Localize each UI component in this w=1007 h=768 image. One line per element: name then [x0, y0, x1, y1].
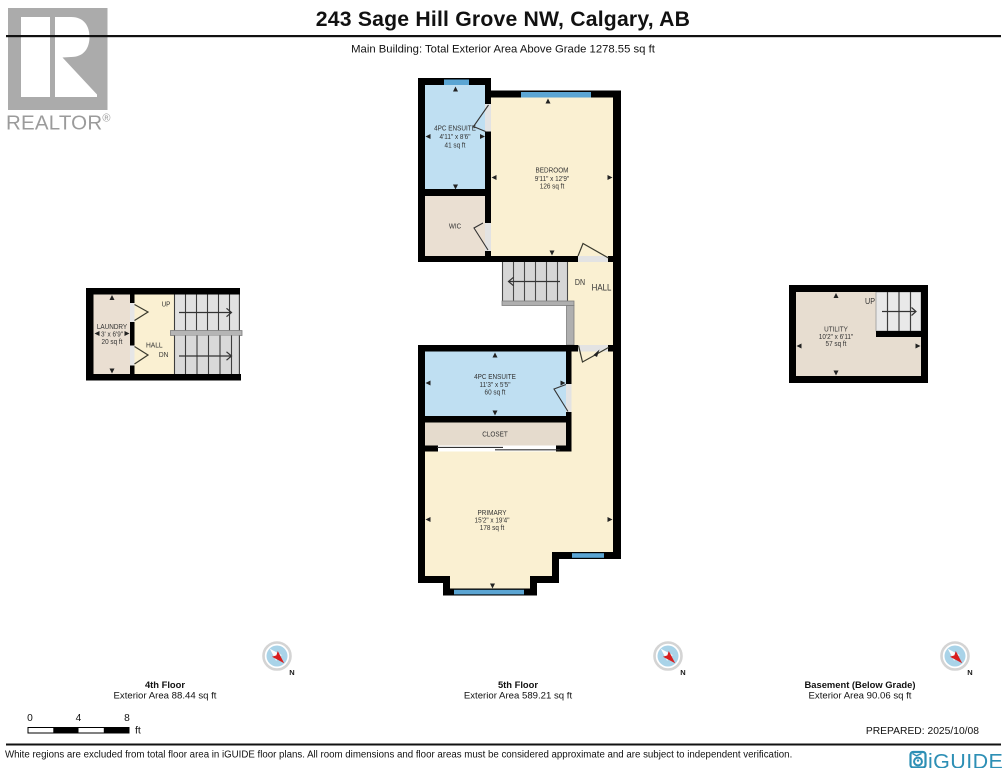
svg-text:UTILITY: UTILITY [824, 326, 848, 334]
svg-text:60 sq ft: 60 sq ft [485, 389, 506, 397]
svg-text:Basement (Below Grade): Basement (Below Grade) [805, 679, 916, 690]
svg-text:5th Floor: 5th Floor [498, 679, 538, 690]
svg-text:White regions are excluded fro: White regions are excluded from total fl… [5, 750, 792, 761]
svg-text:0: 0 [27, 713, 33, 724]
svg-text:243 Sage Hill Grove NW, Calgar: 243 Sage Hill Grove NW, Calgary, AB [316, 8, 690, 31]
svg-text:41 sq ft: 41 sq ft [445, 142, 466, 150]
svg-text:Main Building: Total Exterior: Main Building: Total Exterior Area Above… [351, 44, 656, 56]
svg-text:8: 8 [124, 713, 130, 724]
svg-text:HALL: HALL [592, 282, 612, 293]
svg-text:15'2" x 19'4": 15'2" x 19'4" [475, 517, 510, 525]
svg-text:UP: UP [865, 297, 875, 307]
svg-text:4th Floor: 4th Floor [145, 679, 185, 690]
svg-text:BEDROOM: BEDROOM [536, 167, 569, 175]
svg-text:N: N [967, 668, 972, 677]
svg-text:3' x 6'9": 3' x 6'9" [101, 331, 124, 339]
svg-text:4PC ENSUITE: 4PC ENSUITE [434, 125, 476, 133]
svg-text:DN: DN [575, 278, 585, 288]
svg-text:UP: UP [162, 301, 171, 308]
svg-text:4: 4 [76, 713, 82, 724]
svg-text:126 sq ft: 126 sq ft [540, 183, 564, 191]
svg-text:REALTOR®: REALTOR® [6, 112, 111, 135]
svg-text:iGUIDE: iGUIDE [928, 750, 1003, 768]
svg-text:57 sq ft: 57 sq ft [826, 341, 847, 349]
svg-text:WIC: WIC [449, 223, 461, 231]
svg-text:HALL: HALL [146, 341, 163, 349]
svg-text:Exterior Area 88.44 sq ft: Exterior Area 88.44 sq ft [114, 691, 217, 702]
svg-text:4PC ENSUITE: 4PC ENSUITE [474, 374, 516, 382]
svg-text:20 sq ft: 20 sq ft [102, 339, 123, 347]
svg-text:LAUNDRY: LAUNDRY [97, 324, 128, 332]
svg-text:Exterior Area 90.06 sq ft: Exterior Area 90.06 sq ft [809, 691, 912, 702]
svg-text:ft: ft [135, 725, 141, 737]
svg-text:Exterior Area 589.21 sq ft: Exterior Area 589.21 sq ft [464, 691, 573, 702]
svg-text:CLOSET: CLOSET [482, 431, 508, 439]
svg-text:4'11" x 8'6": 4'11" x 8'6" [440, 134, 471, 142]
svg-text:DN: DN [159, 352, 169, 359]
svg-text:N: N [680, 668, 685, 677]
svg-text:11'3" x 5'5": 11'3" x 5'5" [480, 382, 511, 390]
svg-text:178 sq ft: 178 sq ft [480, 525, 504, 533]
svg-text:PREPARED: 2025/10/08: PREPARED: 2025/10/08 [866, 726, 979, 737]
svg-text:PRIMARY: PRIMARY [478, 510, 507, 518]
svg-text:N: N [289, 668, 294, 677]
svg-text:9'11" x 12'9": 9'11" x 12'9" [535, 176, 570, 184]
